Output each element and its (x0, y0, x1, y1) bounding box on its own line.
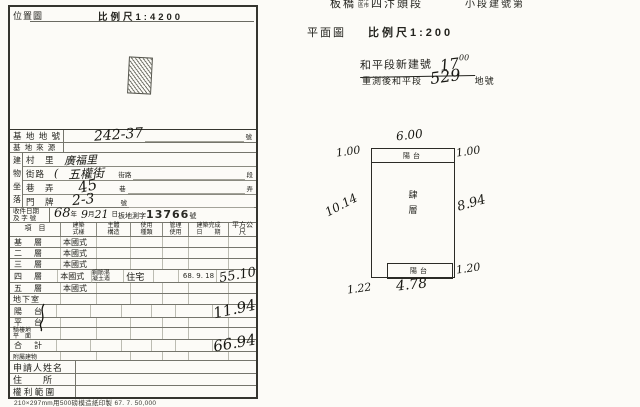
floor-usage-value: 住宅 (123, 270, 153, 282)
row-village: 村 里 廣福里 (23, 153, 256, 167)
table-row-floor-3: 三 層 本國式 (10, 259, 256, 270)
table-row-rights: 權 利 範 圍 (10, 386, 256, 397)
dim-bottom-left-offset: 1.22 (346, 280, 372, 296)
street-suffix: 段 (247, 169, 254, 179)
street-brace-mark: ( (54, 167, 58, 180)
balcony-row-label: 陽 台 (10, 305, 56, 317)
floor-name: 四 層 (10, 270, 57, 282)
floor-completed-date: 68. 9. 18 (178, 270, 216, 282)
top-balcony-strip: 陽台 (372, 149, 454, 163)
arcade-row-label: 騎樓地 平 面 (10, 328, 60, 339)
header-city: 板橋 (330, 0, 356, 11)
floor-name: 三 層 (10, 259, 60, 269)
fourth-floor-label: 肆 層 (408, 188, 417, 218)
floor-name: 五 層 (10, 283, 60, 293)
site-number-value: 242-37 (94, 125, 144, 144)
floor-plan-scale: 比例尺1:200 (368, 24, 453, 40)
lane-suffix: 弄 (247, 183, 254, 193)
building-info-table: 基 地 地 號 242-37 號 基 地 來 源 建 物 坐 落 村 里 廣福里… (8, 129, 258, 399)
dim-top-right-balcony-depth: 1.00 (455, 143, 481, 159)
lot-number-suffix: 地號 (475, 74, 495, 87)
new-building-number-superscript: 00 (459, 53, 469, 62)
column-management: 管理 使用 (162, 223, 188, 236)
floor-name: 地下室 (10, 294, 60, 304)
floor-name: 基 層 (10, 237, 60, 247)
floor-style: 本國式 (60, 283, 96, 293)
column-completed: 建築完成 日 期 (188, 223, 228, 236)
dim-top-width: 6.00 (395, 127, 423, 144)
receipt-year-unit: 年 (71, 208, 78, 218)
street-label: 街路 (23, 168, 54, 180)
resurvey-section-label: 重測後和平段 (362, 74, 422, 87)
door-plate-value: 2-3 (71, 191, 95, 209)
column-structure: 主體 構造 (96, 223, 130, 236)
bottom-balcony-label: 陽台 (410, 266, 430, 276)
street-printed: 街路 (118, 169, 131, 179)
floor-plan-outline: 陽台 肆 層 陽台 (371, 148, 455, 278)
lane-printed: 巷 (119, 183, 126, 193)
header-city-option-bottom: 區市 (358, 3, 369, 9)
table-row-floor-4: 四 層 本國式 鋼筋混 凝土造 住宅 68. 9. 18 55.10 (10, 270, 256, 283)
table-row-balcony: 陽 台 11.94 (10, 305, 256, 318)
form-header-line: 板橋 鎮市 區市 四汴頭段 小段建號第 (330, 0, 525, 11)
table-row-floor-5: 五 層 本國式 (10, 283, 256, 294)
dim-bottom-balcony-depth: 1.20 (455, 260, 481, 276)
floor-plan-title: 平面圖 (307, 24, 346, 40)
dim-right-height: 8.94 (455, 192, 487, 214)
column-area: 平方公尺 (228, 223, 256, 236)
scanned-building-survey-document: 位置圖 比例尺1:4200 基 地 地 號 242-37 號 基 地 來 源 建… (0, 0, 640, 407)
resurvey-lot-number-value: 529 (429, 65, 462, 88)
site-number-suffix: 號 (246, 131, 253, 141)
header-subsection: 小段建號第 (465, 0, 525, 10)
site-parcel-hatched-shape (127, 56, 153, 94)
receipt-year-value: 68 (54, 206, 71, 221)
village-label: 村 里 (23, 154, 64, 166)
location-map-panel: 位置圖 比例尺1:4200 (8, 5, 258, 133)
table-row-floor-2: 二 層 本國式 (10, 248, 256, 259)
write-line (133, 176, 244, 180)
table-row-floor-1: 基 層 本國式 (10, 237, 256, 248)
write-line (128, 190, 245, 194)
dim-bottom-balcony-width: 4.78 (395, 275, 428, 294)
receipt-label: 收件日期 及 字 號 (10, 208, 50, 222)
header-city-options: 鎮市 區市 (358, 0, 369, 9)
table-row-address: 住 所 (10, 374, 256, 386)
receipt-month-value: 9 (81, 208, 88, 221)
receipt-doc-number: 13766 (146, 208, 189, 221)
annex-row-label: 附屬建物 (10, 352, 60, 360)
top-balcony-label: 陽台 (403, 151, 423, 161)
header-section: 四汴頭段 (371, 0, 423, 11)
map-header-rule (30, 21, 254, 22)
total-row-label: 合 計 (10, 340, 56, 351)
platform-row-label: 平 台 (10, 318, 60, 327)
column-usage: 使用 種類 (130, 223, 162, 236)
address-label: 住 所 (10, 374, 76, 385)
site-source-label: 基 地 來 源 (10, 143, 64, 152)
rights-label: 權 利 範 圍 (10, 386, 76, 397)
door-plate-printed: 號 (121, 197, 128, 207)
site-number-label: 基 地 地 號 (10, 130, 64, 142)
floor-structure-value: 鋼筋混 凝土造 (91, 269, 123, 282)
handwritten-check-mark (36, 304, 48, 332)
receipt-doc-word: 板地測字 (118, 211, 146, 221)
table-block-building-location: 建 物 坐 落 村 里 廣福里 街路 ( 五權街 街路 段 巷 弄 45 (10, 153, 256, 208)
receipt-doc-suffix: 號 (189, 211, 196, 221)
applicant-label: 申請人姓名 (10, 361, 76, 373)
table-row-site-source: 基 地 來 源 (10, 143, 256, 153)
floor-name: 二 層 (10, 248, 60, 258)
column-style: 建築 式樣 (60, 223, 96, 236)
write-line (145, 138, 243, 142)
column-item: 項 目 (10, 223, 60, 236)
building-location-column-label: 建 物 坐 落 (10, 153, 23, 207)
table-row-receipt: 收件日期 及 字 號 68 年 9 月 21 日 板地測字 13766 號 (10, 208, 256, 223)
dim-top-left-balcony-depth: 1.00 (335, 143, 361, 159)
receipt-day-value: 21 (95, 208, 109, 221)
new-building-number-label: 和平段新建號 (360, 56, 432, 73)
lane-label: 巷 弄 (23, 182, 64, 194)
floor-style: 本國式 (60, 259, 96, 269)
floor-style: 本國式 (60, 248, 96, 258)
dim-left-height: 10.14 (323, 191, 360, 219)
print-specification-note: 210×297mm用500磅模造紙印製 67. 7. 50,000 (14, 397, 156, 407)
floor-style: 本國式 (57, 270, 91, 282)
table-column-header-row: 項 目 建築 式樣 主體 構造 使用 種類 管理 使用 建築完成 日 期 平方公… (10, 223, 256, 237)
floor-style: 本國式 (60, 237, 96, 247)
row-lane: 巷 弄 45 巷 弄 (23, 181, 256, 195)
row-street: 街路 ( 五權街 街路 段 (23, 167, 256, 181)
lot-annotation-line2: 重測後和平段 529 地號 (362, 74, 495, 87)
table-row-total: 合 計 66.94 (10, 340, 256, 352)
